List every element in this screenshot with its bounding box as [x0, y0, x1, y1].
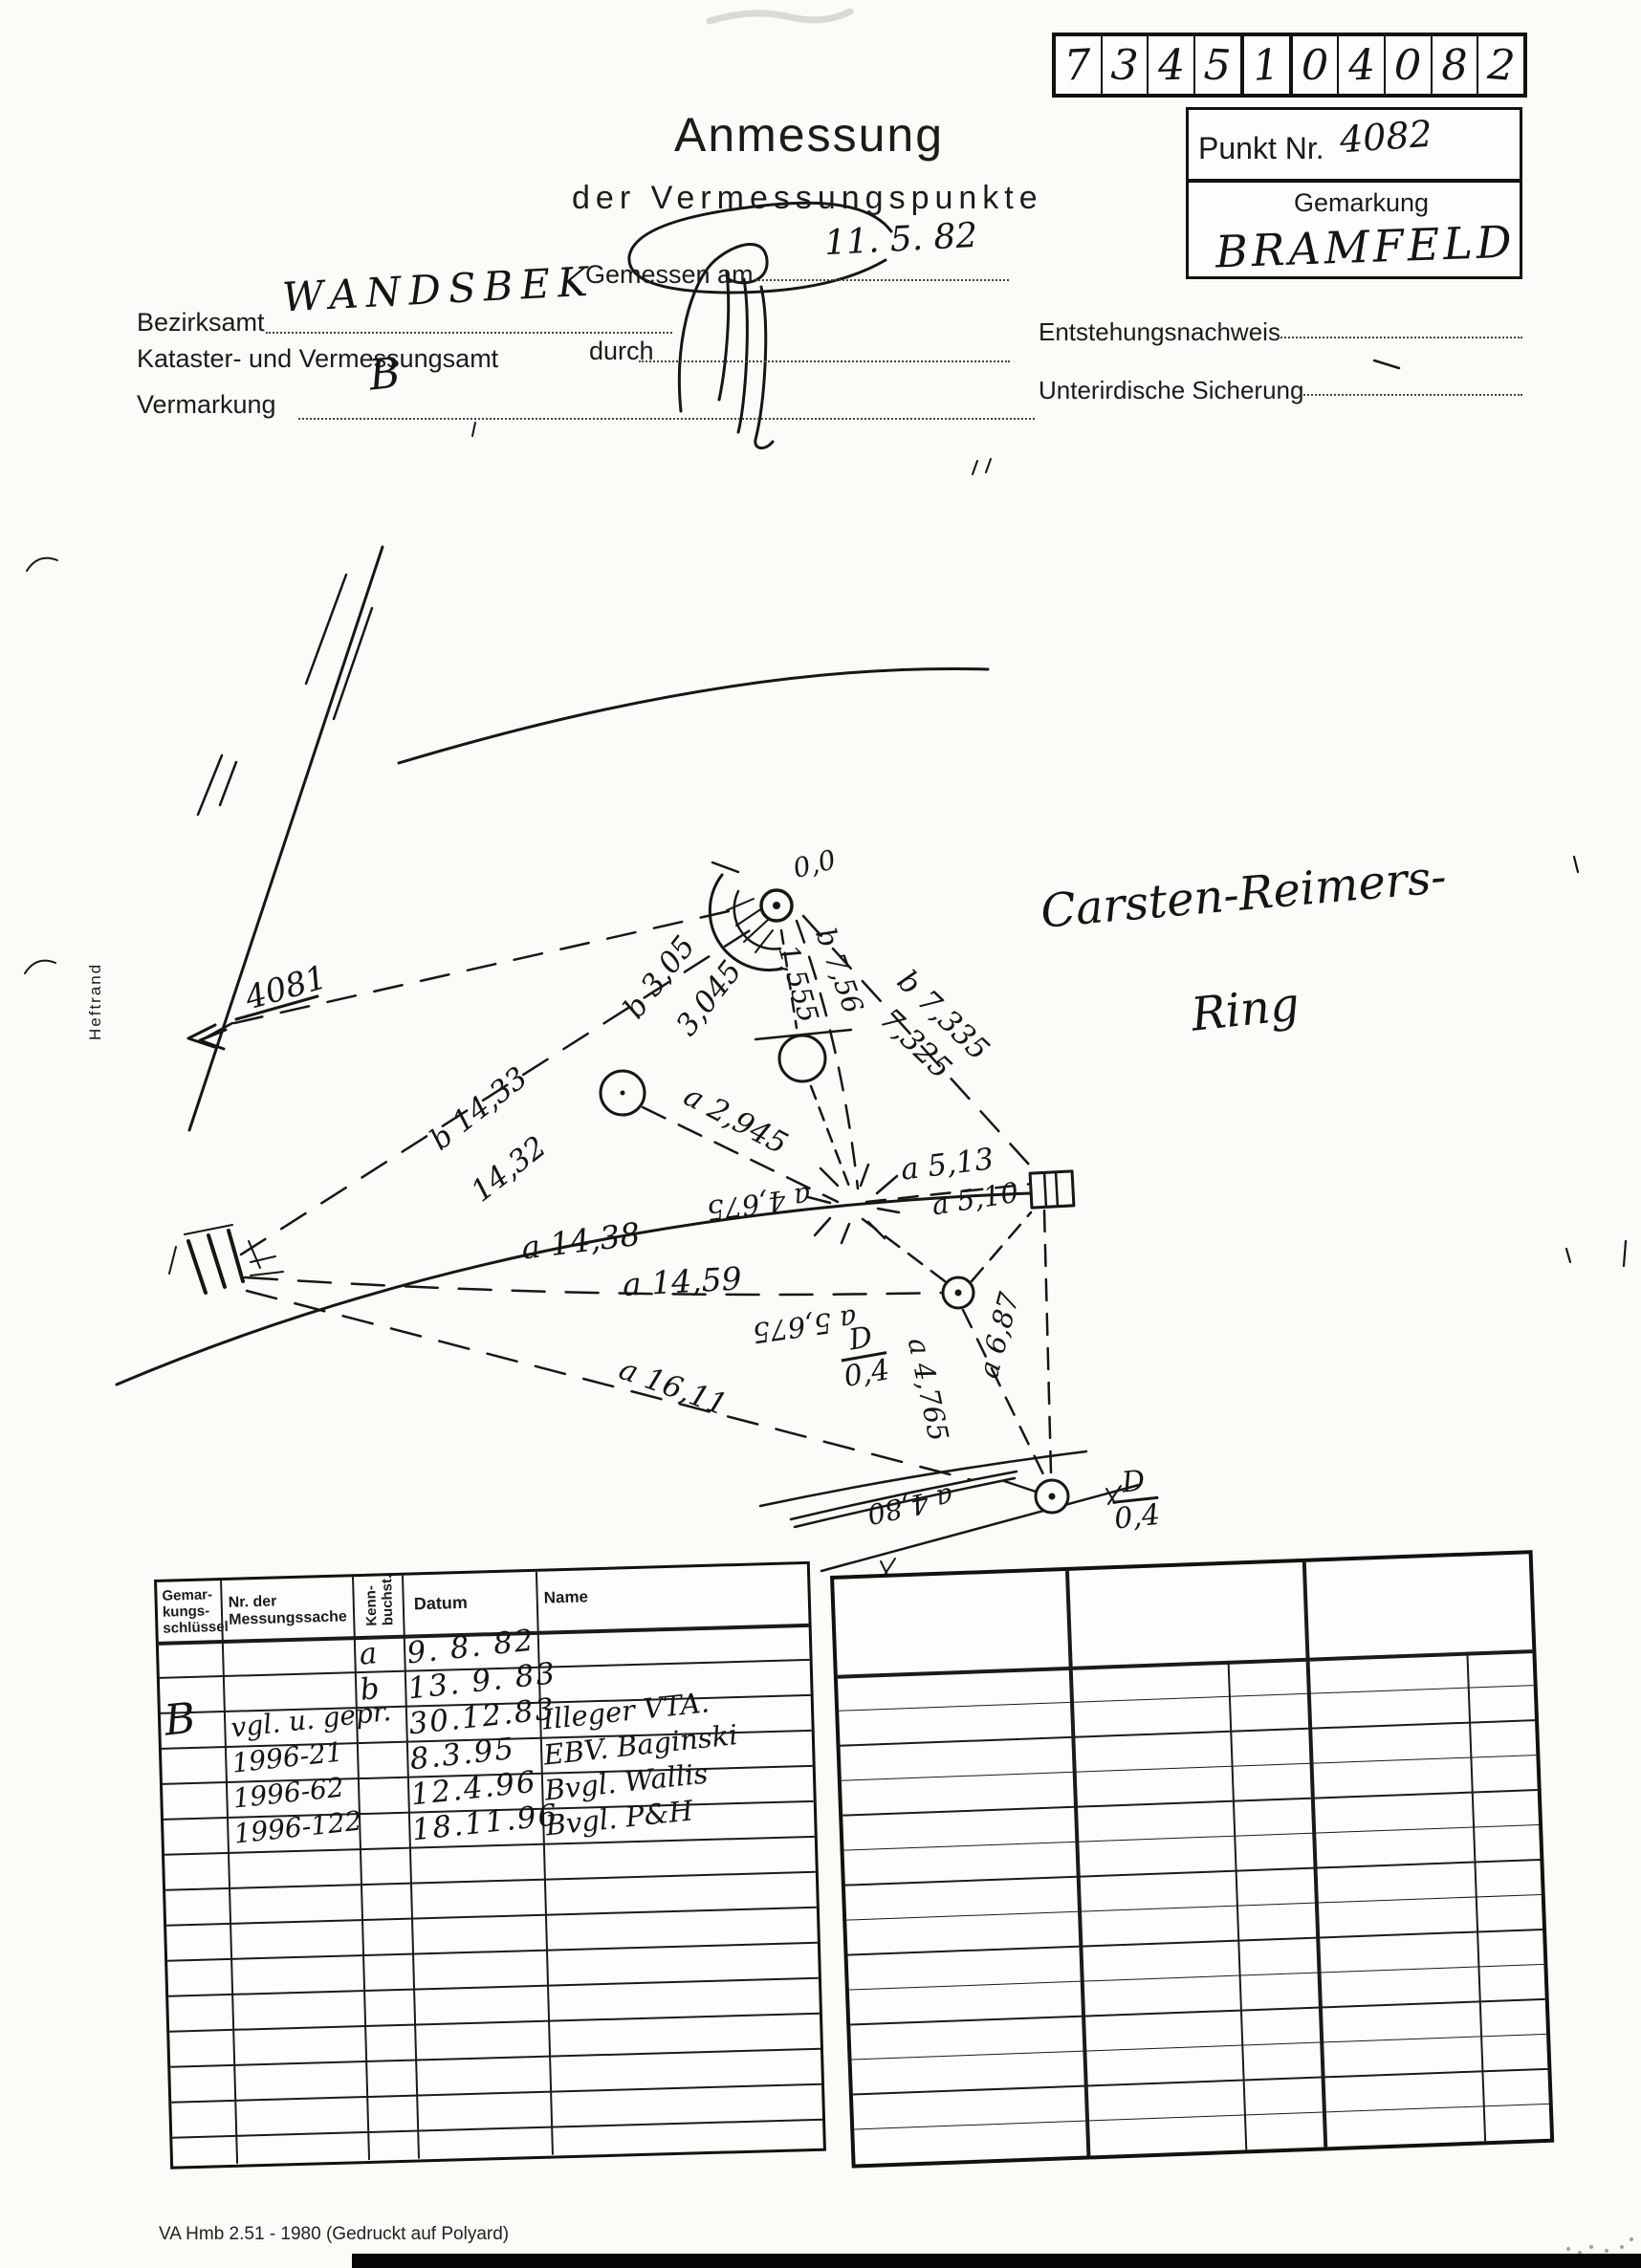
row-line — [845, 1859, 1541, 1886]
durch-line — [639, 360, 1010, 362]
row-line — [843, 1824, 1539, 1851]
scan-artifact-bar — [352, 2254, 1641, 2268]
fraction-bottom: 0,4 — [842, 1354, 892, 1392]
depth-fraction-label: D0,4 — [1109, 1466, 1161, 1535]
measurement-label: 0,0 — [790, 843, 839, 884]
measurement-label: a 14,38 — [519, 1215, 642, 1267]
id-digit: 2 — [1486, 39, 1517, 90]
id-digit-cell: 5 — [1195, 36, 1244, 94]
gemessen-value: 11. 5. 82 — [823, 216, 978, 263]
row-line — [166, 1907, 817, 1926]
right-grid-table — [830, 1550, 1554, 2169]
id-digit: 1 — [1251, 40, 1280, 91]
punkt-nr-value: 4082 — [1339, 113, 1434, 162]
id-digit-cell: 8 — [1433, 36, 1479, 94]
heftrand-label: Heftrand — [86, 963, 105, 1040]
row-line — [169, 2013, 820, 2032]
entstehung-line — [1278, 337, 1522, 338]
row-line — [839, 1685, 1534, 1712]
header-divider — [838, 1649, 1533, 1679]
id-digit: 0 — [1393, 40, 1423, 90]
id-digit-cell: 1 — [1244, 36, 1293, 94]
street-name-line1: Carsten-Reimers- — [1039, 850, 1449, 939]
row-line — [172, 2119, 822, 2138]
id-digit: 7 — [1063, 40, 1093, 90]
row-line — [846, 1893, 1542, 1920]
vermarkung-value: B — [366, 348, 402, 400]
column-line — [1065, 1571, 1090, 2156]
scanned-survey-form: Anmessung der Vermessungspunkte 73451040… — [0, 0, 1641, 2268]
sicherung-label: Unterirdische Sicherung — [1039, 376, 1303, 405]
id-digit: 4 — [1157, 40, 1186, 90]
col-header-name: Name — [543, 1587, 588, 1606]
col-header-messungssache: Nr. der Messungssache — [228, 1591, 347, 1628]
measurement-label: a 4,80 — [864, 1481, 956, 1531]
measurement-record-table: Gemar- kungs- schlüssel Nr. der Messungs… — [154, 1561, 826, 2170]
entstehung-label: Entstehungsnachweis — [1039, 317, 1280, 347]
gemarkung-label: Gemarkung — [1294, 188, 1429, 218]
measurement-label: a 4,675 — [705, 1180, 813, 1227]
measurement-label: a 4,765 — [902, 1335, 955, 1444]
gemessen-label: Gemessen am — [585, 260, 754, 290]
row-line — [850, 1998, 1545, 2025]
point-id-digit-boxes: 7345104082 — [1052, 33, 1527, 98]
id-digit-cell: 4 — [1339, 36, 1386, 94]
id-digit-cell: 3 — [1103, 36, 1149, 94]
fraction-bottom: 0,4 — [1113, 1499, 1162, 1535]
bezirksamt-value: WANDSBEK — [281, 257, 597, 320]
row-line — [168, 1977, 819, 1996]
form-title: Anmessung — [674, 107, 944, 163]
col-header-gemarkungsschluessel: Gemar- kungs- schlüssel — [162, 1587, 229, 1637]
vermarkung-label: Vermarkung — [137, 390, 276, 420]
col-header-kennbuchstabe: Kenn- buchst. — [363, 1575, 397, 1626]
measurement-label: 4081 — [241, 958, 331, 1017]
form-footer: VA Hmb 2.51 - 1980 (Gedruckt auf Polyard… — [159, 2224, 509, 2245]
vermarkung-line — [298, 418, 1035, 420]
id-digit-cell: 0 — [1386, 36, 1433, 94]
row-line — [849, 1963, 1544, 1990]
row-line — [852, 2033, 1547, 2060]
measurement-label: a 5,10 — [930, 1176, 1020, 1222]
row-line — [167, 1942, 818, 1961]
row-line — [170, 2048, 820, 2067]
bezirksamt-label: Bezirksamt — [137, 308, 265, 338]
table-entry-gemark: B — [162, 1693, 198, 1745]
col-header-datum: Datum — [414, 1593, 469, 1614]
sicherung-line — [1301, 394, 1522, 396]
row-line — [853, 2068, 1548, 2095]
column-line — [1302, 1562, 1327, 2148]
row-line — [854, 2103, 1549, 2129]
punkt-nr-label: Punkt Nr. — [1198, 131, 1324, 166]
id-digit: 0 — [1301, 40, 1329, 90]
street-name-line2: Ring — [1189, 977, 1302, 1042]
measurement-label: a 6,87 — [972, 1289, 1025, 1382]
id-digit: 3 — [1109, 40, 1139, 91]
table-entry-kenn: a — [358, 1636, 379, 1672]
gemarkung-box: Gemarkung BRAMFELD — [1186, 180, 1522, 279]
id-digit-cell: 2 — [1478, 36, 1523, 94]
punkt-nr-box: Punkt Nr. 4082 — [1186, 107, 1522, 182]
table-entry-nr: vgl. u. gepr. — [230, 1695, 393, 1744]
measurement-label: a 16,11 — [615, 1352, 732, 1423]
row-line — [840, 1719, 1535, 1746]
row-line — [842, 1755, 1537, 1781]
id-digit-cell: 7 — [1056, 36, 1103, 94]
row-line — [842, 1789, 1538, 1816]
depth-fraction-label: D0,4 — [836, 1321, 892, 1392]
id-digit: 5 — [1203, 40, 1233, 90]
row-line — [165, 1871, 816, 1890]
gemessen-line — [755, 279, 1009, 281]
id-digit-cell: 0 — [1293, 36, 1340, 94]
bezirksamt-line — [266, 332, 672, 334]
id-digit: 4 — [1346, 40, 1376, 90]
form-subtitle: der Vermessungspunkte — [572, 180, 1043, 217]
row-line — [171, 2083, 821, 2103]
measurement-label: 14,32 — [465, 1129, 553, 1209]
gemarkung-value: BRAMFELD — [1214, 216, 1516, 278]
measurement-label: a 2,945 — [678, 1079, 793, 1162]
id-digit: 8 — [1440, 40, 1469, 90]
amt-line: Kataster- und Vermessungsamt — [137, 344, 498, 374]
row-line — [848, 1929, 1543, 1955]
id-digit-cell: 4 — [1149, 36, 1195, 94]
measurement-label: a 14,59 — [622, 1259, 743, 1302]
column-line — [220, 1581, 238, 2164]
